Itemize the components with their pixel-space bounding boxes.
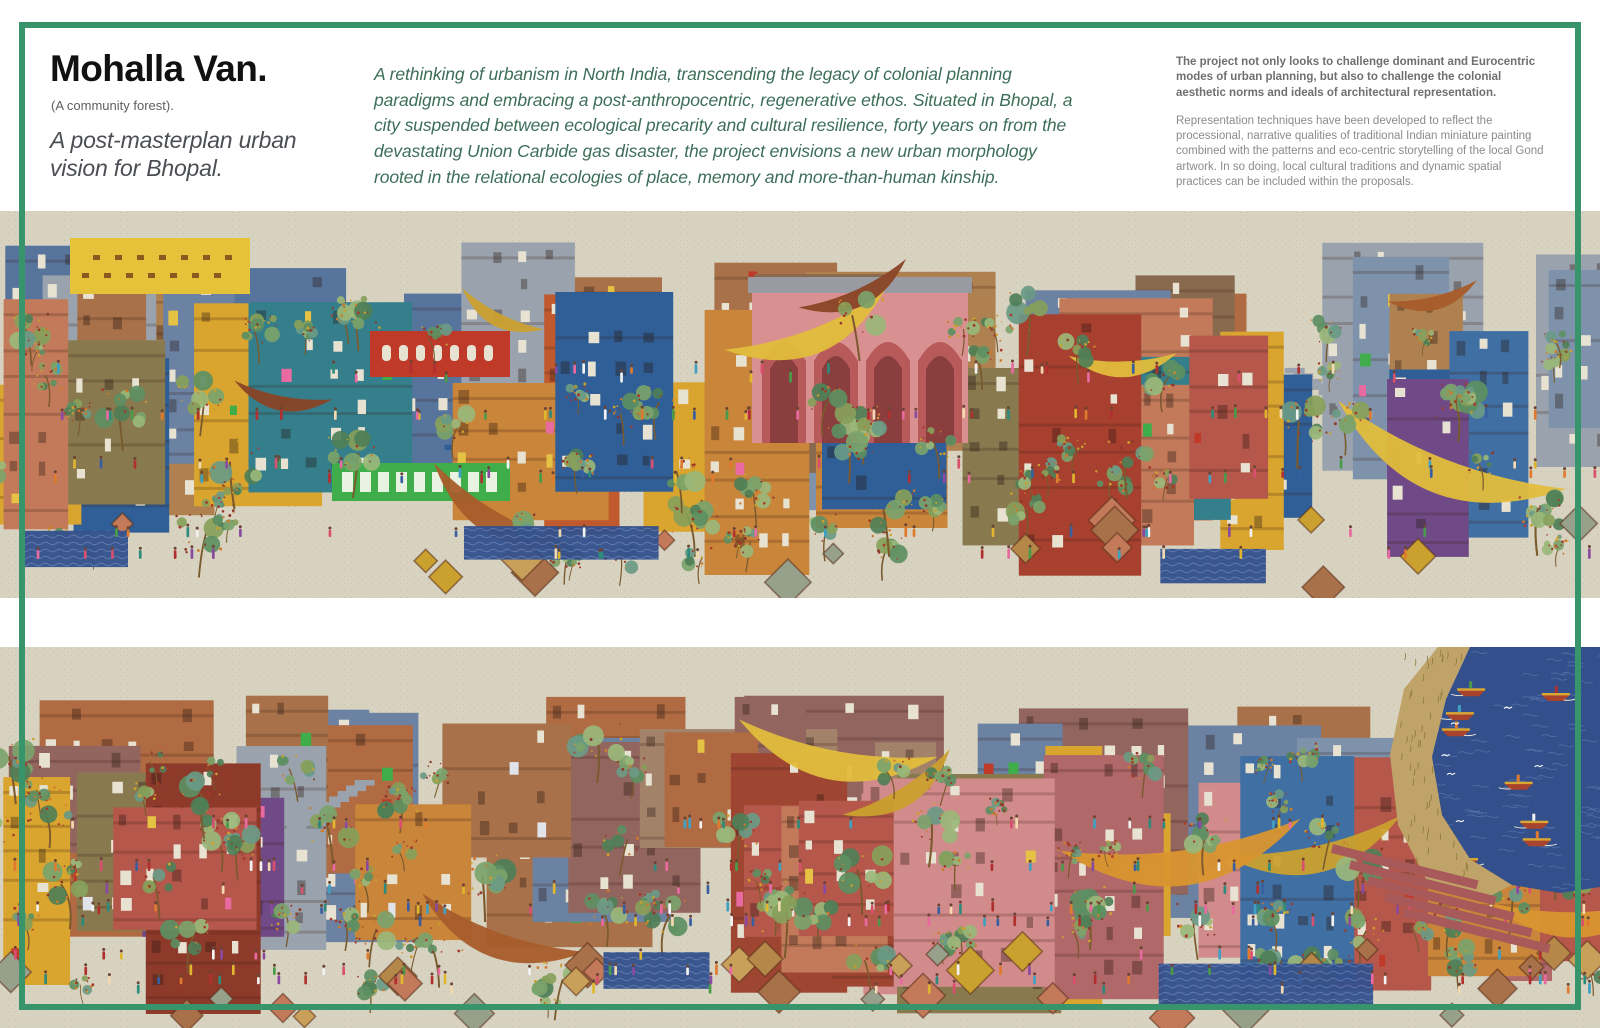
panorama-band-upper — [0, 211, 1600, 598]
panorama-band-lower — [0, 647, 1600, 1028]
lower-panorama-illustration — [0, 647, 1600, 1028]
project-title: Mohalla Van. — [50, 48, 267, 90]
project-tagline: A post-masterplan urban vision for Bhopa… — [50, 126, 310, 182]
poster-board: Mohalla Van. (A community forest). A pos… — [0, 0, 1600, 1028]
intro-paragraph: A rethinking of urbanism in North India,… — [374, 62, 1090, 191]
project-subtitle: (A community forest). — [51, 98, 174, 113]
aside-statement-bold: The project not only looks to challenge … — [1176, 55, 1544, 101]
aside-text-block: The project not only looks to challenge … — [1176, 55, 1544, 190]
upper-panorama-illustration — [0, 211, 1600, 598]
aside-statement-body: Representation techniques have been deve… — [1176, 114, 1544, 190]
